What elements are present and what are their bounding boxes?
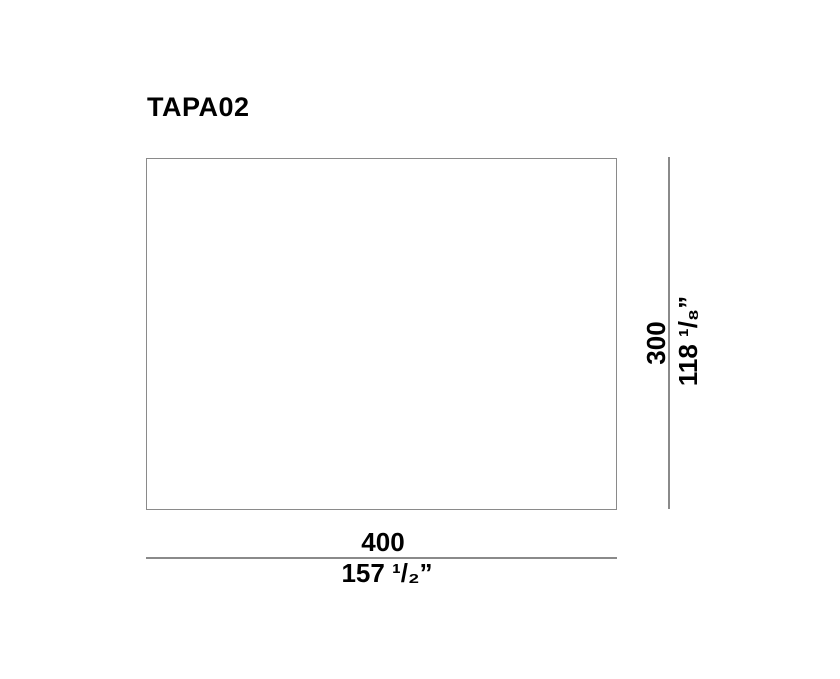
tabletop-outline-rectangle xyxy=(146,158,617,510)
height-imperial-label: 118 ¹/₈” xyxy=(675,296,701,386)
technical-drawing: TAPA02 300 118 ¹/₈” 400 157 ¹/₂” xyxy=(0,0,840,679)
width-metric-label: 400 xyxy=(361,529,404,555)
width-imperial-label: 157 ¹/₂” xyxy=(341,560,432,586)
height-metric-label: 300 xyxy=(643,321,669,364)
product-code-title: TAPA02 xyxy=(147,92,250,123)
